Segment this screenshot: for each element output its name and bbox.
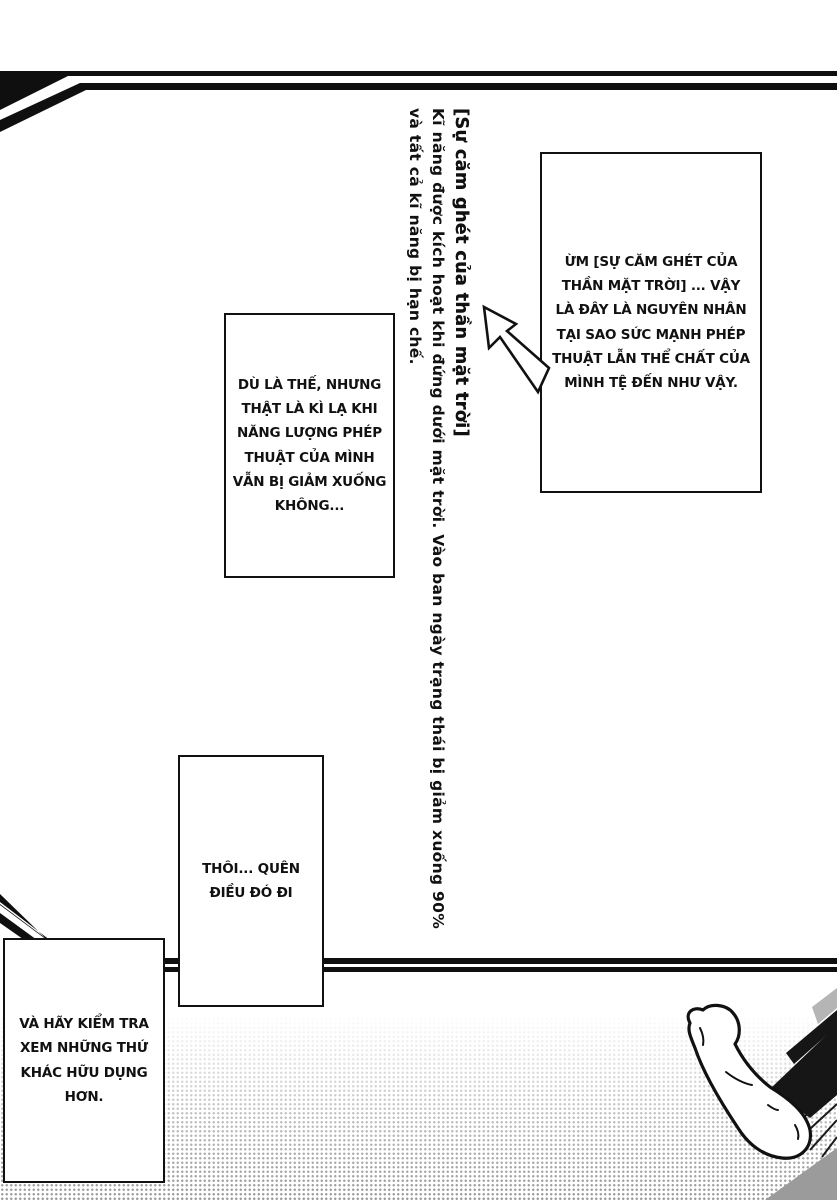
speech-text: DÙ LÀ THẾ, NHƯNG THẬT LÀ KÌ LẠ KHI NĂNG … [230,373,389,517]
foot-outline [688,1005,810,1158]
floor-corner-shade [765,1148,837,1200]
speech-box-forget-it: THÔI... QUÊN ĐIỀU ĐÓ ĐI [178,755,324,1007]
speech-box-check-other-things: VÀ HÃY KIỂM TRA XEM NHỮNG THỨ KHÁC HỮU D… [3,938,165,1183]
top-border-thin-stripe [0,71,837,110]
speech-text: VÀ HÃY KIỂM TRA XEM NHỮNG THỨ KHÁC HỮU D… [16,1012,152,1108]
trouser-thin-fold [786,1010,837,1064]
skill-effect-text-line2: và tất cả kĩ năng bị hạn chế. [403,108,426,860]
trouser-leg [772,1025,837,1118]
trouser-grey-fold [812,988,837,1024]
speech-text: THÔI... QUÊN ĐIỀU ĐÓ ĐI [199,857,303,905]
speech-box-sun-god-hatred: ỪM [SỰ CĂM GHÉT CỦA THẦN MẶT TRỜI] ... V… [540,152,762,493]
speech-text: ỪM [SỰ CĂM GHÉT CỦA THẦN MẶT TRỜI] ... V… [549,250,753,394]
foot-crease-lines [700,1028,798,1139]
hatch-shading [770,1060,837,1157]
skill-effect-text-line1: Kĩ năng được kích hoạt khi đứng dưới mặt… [426,108,449,860]
foot-illustration [620,985,837,1200]
skill-description-vertical-text: [Sự căm ghét của thần mặt trời] Kĩ năng … [403,108,472,860]
skill-name-text: [Sự căm ghét của thần mặt trời] [449,108,472,860]
speech-box-strange-mana-drop: DÙ LÀ THẾ, NHƯNG THẬT LÀ KÌ LẠ KHI NĂNG … [224,313,395,578]
